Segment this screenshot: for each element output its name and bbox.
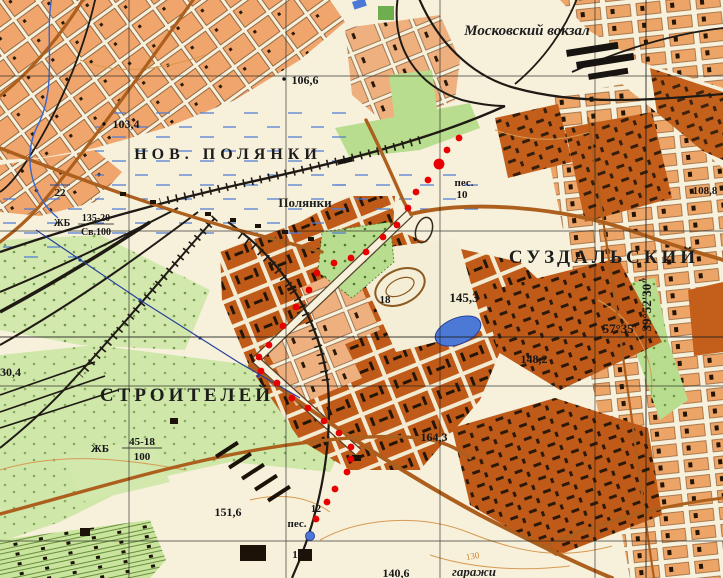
track-point xyxy=(413,189,420,196)
label-contour-130: 130 xyxy=(465,550,480,562)
track-point xyxy=(336,430,343,437)
track-point xyxy=(394,222,401,229)
track-point xyxy=(306,287,313,294)
label-river-width: 22 xyxy=(55,187,67,199)
label-h140: 140,6 xyxy=(383,566,410,578)
track-point xyxy=(348,456,355,463)
track-point xyxy=(348,255,355,262)
track-point xyxy=(305,405,312,412)
track-point xyxy=(313,516,320,523)
bridge-bottom-prefix: ЖБ xyxy=(91,443,109,455)
label-latitude: 57°35' xyxy=(603,321,638,336)
label-h108: 108,8 xyxy=(693,185,718,197)
track-point xyxy=(289,395,296,402)
bridge-bottom-num: 45-18 xyxy=(129,436,155,448)
green-small-top xyxy=(389,70,438,122)
label-h145: 145,3 xyxy=(449,290,479,305)
track-point xyxy=(425,177,432,184)
label-h148: 148,2 xyxy=(521,352,548,366)
label-district-right: СУЗДАЛЬСКИЙ xyxy=(509,246,699,268)
track-point xyxy=(321,418,328,425)
label-sand-bottom: пес. xyxy=(288,518,307,530)
bridge-top-prefix: ЖБ xyxy=(54,218,71,229)
track-point xyxy=(405,205,412,212)
label-sand-top-num: 10 xyxy=(457,189,469,201)
track-point xyxy=(456,135,463,142)
green-square-top xyxy=(378,6,394,20)
track-point xyxy=(434,159,445,170)
track-point xyxy=(280,323,287,330)
track-point xyxy=(293,304,300,311)
label-district-bottom: СТРОИТЕЛЕЙ xyxy=(100,384,274,406)
track-point xyxy=(266,342,273,349)
label-longitude: 39°52'30″ xyxy=(639,277,654,332)
bridge-top-num: 135-20 xyxy=(82,213,110,224)
topo-map[interactable]: Московский вокзал 106,6 103,4 НОВ. ПОЛЯН… xyxy=(0,0,723,578)
track-point xyxy=(314,270,321,277)
label-small-10: 10° xyxy=(292,549,307,561)
label-sand-bottom-num: 12 xyxy=(311,504,321,515)
bridge-top-den: Св.100 xyxy=(81,227,111,238)
suzdalsky-dark-3 xyxy=(688,282,723,356)
track-point xyxy=(324,499,331,506)
map-canvas: Московский вокзал 106,6 103,4 НОВ. ПОЛЯН… xyxy=(0,0,723,578)
track-point xyxy=(256,354,263,361)
track-point xyxy=(344,469,351,476)
label-station: Московский вокзал xyxy=(463,23,590,39)
label-district-top: НОВ. ПОЛЯНКИ xyxy=(134,146,322,163)
small-pond xyxy=(306,532,315,541)
track-point xyxy=(380,234,387,241)
track-point xyxy=(274,380,281,387)
label-village: Полянки xyxy=(278,195,332,210)
track-point xyxy=(331,260,338,267)
track-point xyxy=(258,368,265,375)
bridge-bottom-den: 100 xyxy=(134,451,151,463)
building-block xyxy=(240,545,266,561)
track-point xyxy=(332,486,339,493)
spot-height-dot xyxy=(282,77,285,80)
label-sand-top: пес. xyxy=(455,177,474,189)
track-point xyxy=(363,249,370,256)
label-h164: 164,3 xyxy=(421,430,448,444)
spot-height-dot xyxy=(102,122,105,125)
terrain-layer xyxy=(0,0,723,578)
label-garages: гаражи xyxy=(452,564,496,578)
label-h103: 103,4 xyxy=(113,117,140,131)
track-point xyxy=(348,444,355,451)
label-h151: 151,6 xyxy=(215,505,242,519)
label-road-number: 18 xyxy=(380,294,392,306)
label-h130: 130,4 xyxy=(0,365,21,379)
track-point xyxy=(444,147,451,154)
label-h106: 106,6 xyxy=(292,73,319,87)
